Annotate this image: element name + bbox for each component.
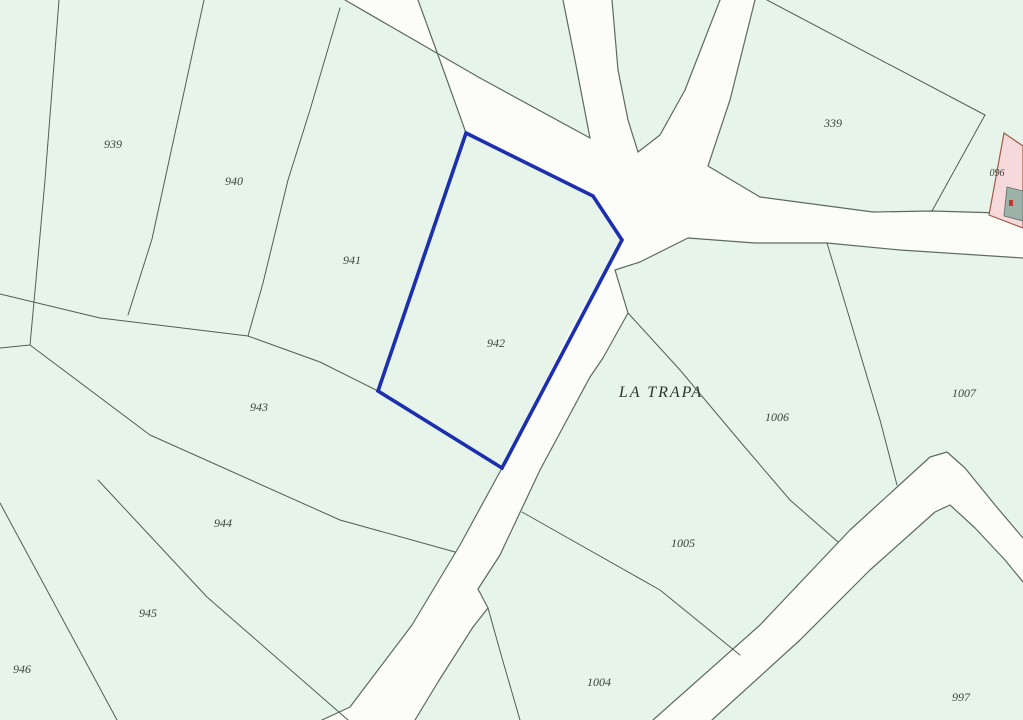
parcel-label-943: 943 <box>250 400 268 414</box>
cadastral-map: 939 940 941 942 943 944 945 946 339 096 … <box>0 0 1023 720</box>
parcel-label-945: 945 <box>139 606 157 620</box>
parcel-label-1005: 1005 <box>671 536 695 550</box>
parcel-label-096: 096 <box>990 168 1005 179</box>
parcel-label-944: 944 <box>214 516 232 530</box>
parcel-label-940: 940 <box>225 174 243 188</box>
parcel-label-939: 939 <box>104 137 122 151</box>
map-canvas: 939 940 941 942 943 944 945 946 339 096 … <box>0 0 1023 720</box>
parcel-label-942: 942 <box>487 336 505 350</box>
parcel-label-1006: 1006 <box>765 410 789 424</box>
place-name-label: LA TRAPA <box>618 384 703 401</box>
parcel-label-997: 997 <box>952 690 971 704</box>
building-footprint <box>1004 187 1023 221</box>
parcel-label-339: 339 <box>823 116 842 130</box>
parcel-label-941: 941 <box>343 253 361 267</box>
parcel-label-1007: 1007 <box>952 386 977 400</box>
parcel-label-1004: 1004 <box>587 675 611 689</box>
building-mark <box>1009 200 1013 206</box>
parcel-label-946: 946 <box>13 662 31 676</box>
